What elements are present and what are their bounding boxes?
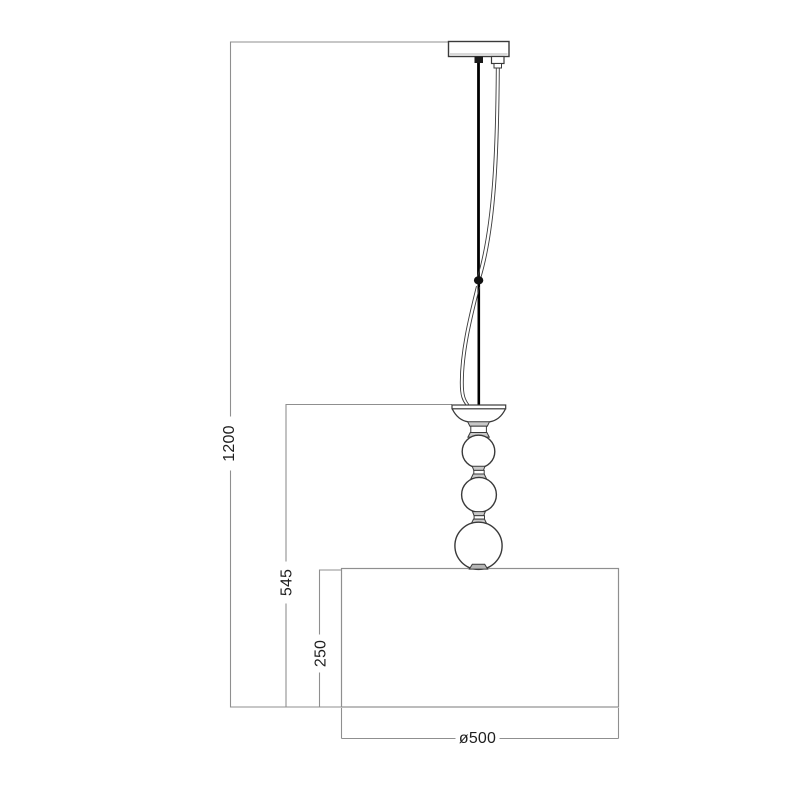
- cable-lower-line-2: [463, 287, 479, 405]
- rod-joint-ferrule: [474, 276, 483, 284]
- cable-lower-line-1: [460, 286, 476, 405]
- fixture-drop-label: 545: [279, 569, 296, 596]
- neck-collar-top-band: [468, 422, 490, 426]
- glass-sphere-small: [462, 435, 495, 468]
- drawing-canvas: 1200 545 250 ø500: [0, 0, 787, 787]
- pendant-lamp-technical-drawing: 1200 545 250 ø500: [0, 0, 787, 787]
- dim-label-250: 250: [311, 635, 330, 673]
- bell-side-right: [490, 409, 506, 422]
- bell-holder: [452, 405, 506, 437]
- cable-upper-line-2: [481, 68, 500, 279]
- neck-collar-middle: [471, 426, 487, 432]
- shade-height-label: 250: [312, 640, 329, 667]
- cable-upper-line-1: [478, 68, 497, 277]
- collar-b-middle: [474, 516, 484, 519]
- rod-mount-nub: [475, 57, 484, 64]
- cable-gland: [492, 57, 505, 64]
- cable-strain-relief: [494, 64, 502, 69]
- collar-a-top-band: [472, 466, 485, 470]
- collar-a-middle: [474, 470, 484, 474]
- bell-side-left: [452, 409, 468, 422]
- shade-diameter-label: ø500: [459, 730, 496, 747]
- overall-height-label: 1200: [221, 425, 238, 461]
- dim-label-diameter: ø500: [456, 728, 500, 747]
- dim-label-545: 545: [277, 562, 296, 604]
- glass-sphere-medium: [462, 477, 497, 512]
- drum-shade: [342, 569, 619, 708]
- collar-sphere1-sphere2: [471, 466, 486, 478]
- bell-flange: [452, 405, 506, 409]
- collar-b-top-band: [473, 512, 486, 516]
- glass-sphere-large: [455, 522, 502, 569]
- shade-mount-collar: [469, 564, 487, 569]
- dim-label-1200: 1200: [220, 417, 239, 471]
